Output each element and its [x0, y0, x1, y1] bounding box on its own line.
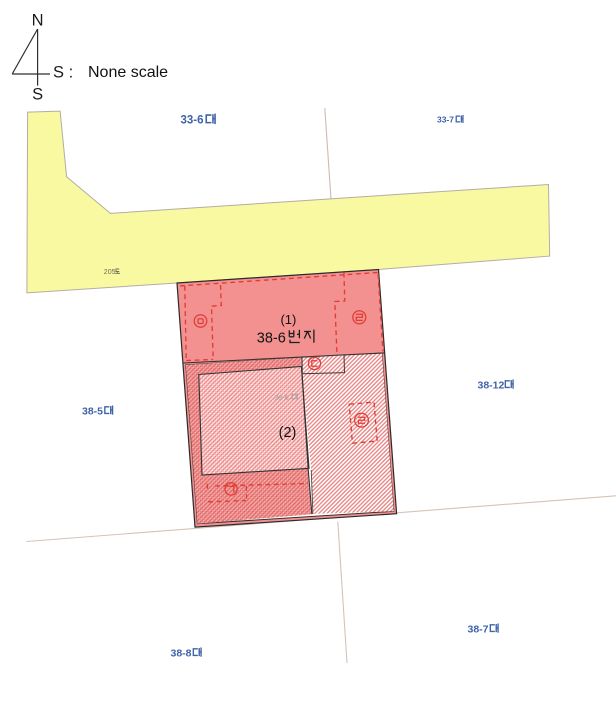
svg-text:(1): (1) — [280, 312, 296, 327]
svg-text:(2): (2) — [279, 425, 297, 441]
svg-text:38-8: 38-8 — [171, 648, 192, 660]
svg-text:S :: S : — [53, 64, 73, 82]
svg-text:38-7: 38-7 — [468, 624, 489, 636]
svg-text:38-5: 38-5 — [82, 406, 103, 418]
svg-text:S: S — [32, 86, 43, 104]
svg-text:None scale: None scale — [88, 64, 168, 81]
svg-text:38-12: 38-12 — [478, 380, 505, 392]
svg-text:33-7: 33-7 — [437, 115, 454, 125]
svg-text:38-6: 38-6 — [275, 395, 289, 402]
svg-text:205: 205 — [104, 269, 116, 276]
svg-text:33-6: 33-6 — [181, 115, 204, 127]
svg-text:38-6: 38-6 — [257, 330, 286, 346]
svg-text:N: N — [32, 12, 44, 30]
